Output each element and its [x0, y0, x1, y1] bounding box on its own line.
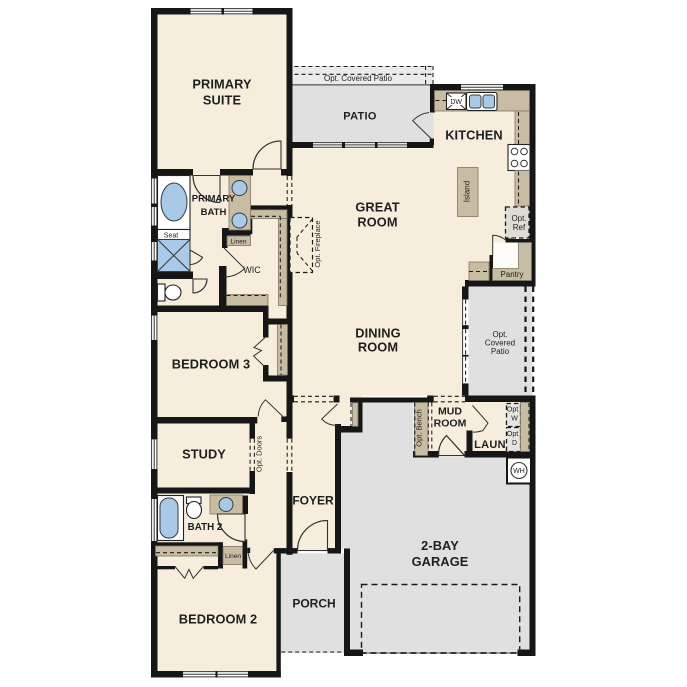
svg-text:Linen: Linen — [225, 553, 241, 560]
svg-text:BATH: BATH — [201, 207, 227, 218]
svg-text:Opt. Covered Patio: Opt. Covered Patio — [324, 74, 393, 83]
svg-text:DW: DW — [450, 99, 462, 106]
svg-text:GARAGE: GARAGE — [412, 554, 469, 569]
svg-text:Ref: Ref — [513, 223, 526, 232]
svg-text:BEDROOM 2: BEDROOM 2 — [179, 612, 257, 627]
svg-text:Opt. Doors: Opt. Doors — [255, 436, 264, 473]
svg-text:Opt.: Opt. — [511, 214, 526, 223]
svg-text:D: D — [512, 440, 517, 447]
svg-text:LAUN: LAUN — [474, 439, 506, 451]
svg-text:MUD: MUD — [438, 406, 462, 418]
svg-text:DINING: DINING — [355, 326, 400, 341]
svg-text:WIC: WIC — [243, 265, 261, 275]
svg-text:Opt. Bench: Opt. Bench — [415, 409, 424, 447]
svg-text:BATH 2: BATH 2 — [188, 522, 223, 533]
svg-text:Pantry: Pantry — [500, 270, 523, 279]
svg-text:GREAT: GREAT — [355, 200, 399, 215]
svg-text:Patio: Patio — [491, 347, 510, 356]
svg-text:STUDY: STUDY — [182, 447, 226, 462]
svg-text:Linen: Linen — [231, 239, 247, 246]
svg-text:FOYER: FOYER — [292, 494, 334, 508]
svg-text:BEDROOM 3: BEDROOM 3 — [172, 357, 250, 372]
svg-text:Opt. Fireplace: Opt. Fireplace — [313, 220, 322, 267]
svg-text:PATIO: PATIO — [343, 111, 377, 123]
svg-text:WH: WH — [513, 468, 525, 475]
svg-text:Opt.: Opt. — [507, 407, 520, 414]
svg-text:ROOM: ROOM — [357, 215, 397, 230]
svg-text:Island: Island — [463, 181, 472, 202]
svg-text:W: W — [511, 416, 518, 423]
svg-text:Opt.: Opt. — [507, 431, 520, 438]
svg-text:PRIMARY: PRIMARY — [192, 77, 252, 92]
svg-text:ROOM: ROOM — [434, 418, 467, 430]
svg-text:Seat: Seat — [164, 233, 178, 240]
svg-text:PRIMARY: PRIMARY — [192, 194, 236, 205]
svg-text:ROOM: ROOM — [358, 340, 398, 355]
svg-text:KITCHEN: KITCHEN — [445, 128, 503, 143]
svg-text:2-BAY: 2-BAY — [421, 538, 459, 553]
svg-text:SUITE: SUITE — [203, 93, 242, 108]
svg-text:PORCH: PORCH — [292, 597, 335, 611]
